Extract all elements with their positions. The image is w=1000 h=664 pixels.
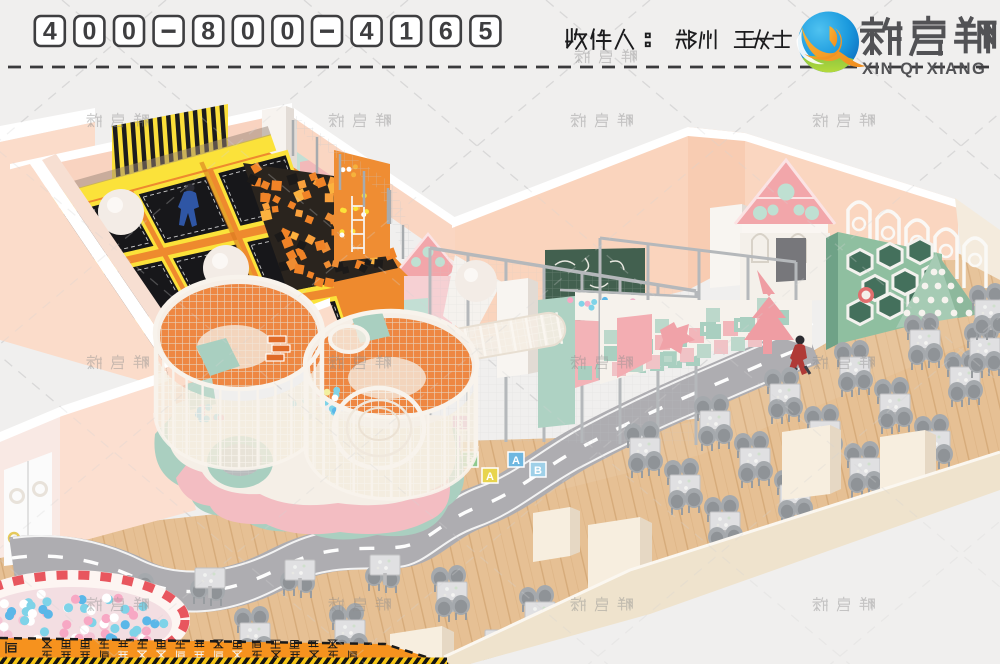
- svg-text:A: A: [512, 455, 520, 467]
- svg-text:5: 5: [478, 18, 492, 46]
- svg-text:0: 0: [82, 18, 96, 46]
- svg-text:1: 1: [399, 18, 413, 46]
- svg-text:XIN QI XIANG: XIN QI XIANG: [862, 60, 986, 78]
- svg-text:0: 0: [280, 18, 294, 46]
- svg-text:0: 0: [241, 18, 255, 46]
- svg-text:6: 6: [439, 18, 453, 46]
- svg-text:0: 0: [122, 18, 136, 46]
- svg-text:4: 4: [43, 18, 57, 46]
- svg-text:4: 4: [360, 18, 374, 46]
- svg-text:B: B: [534, 465, 542, 477]
- svg-text:A: A: [486, 471, 494, 483]
- svg-text:8: 8: [201, 18, 215, 46]
